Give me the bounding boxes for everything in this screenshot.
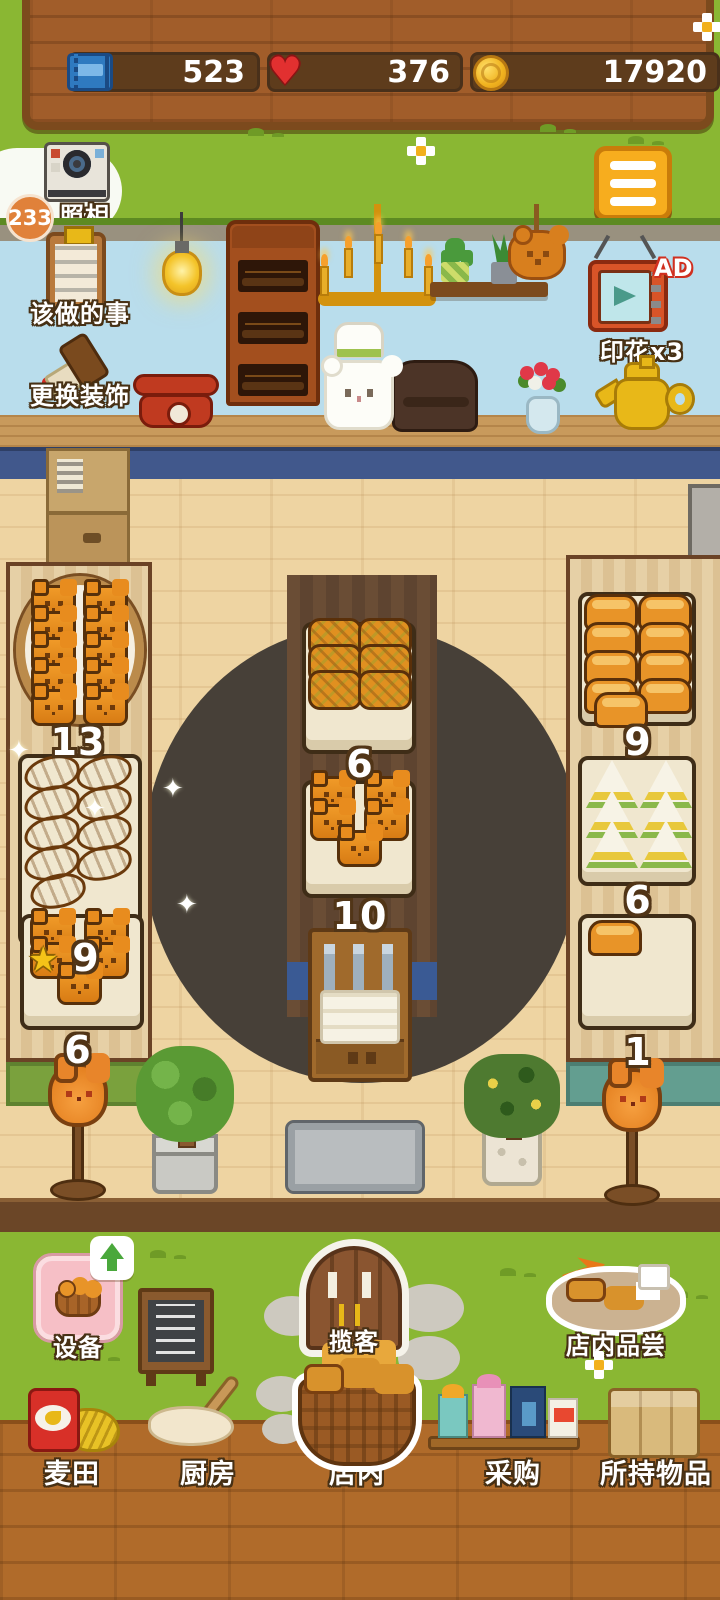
sparkle-icon: ✦ [162,774,184,804]
shop-interior: AD 印花x3 该做的事 更换装饰 [0,218,720,1232]
flower-decor [408,138,434,164]
chocolate-sofa-decor [392,360,478,432]
grass-tuft [628,136,644,144]
grass-tuft [150,1250,166,1258]
cake-candles [324,944,398,994]
coins-pill: 17920 [470,52,720,92]
play-icon [614,286,636,306]
cardboard-boxes [46,448,130,566]
tickets-value: 523 [182,55,245,90]
cake-display-cabinet[interactable] [308,928,412,1082]
currency-sign-board: 523 ♥ 376 17920 [22,0,714,130]
telephone [133,372,219,430]
hearts-value: 376 [387,55,450,90]
doormat [288,1123,422,1191]
kitchen-button[interactable] [148,1398,252,1452]
in-store-button[interactable] [298,1378,416,1466]
inventory-button[interactable] [608,1388,700,1458]
count-center-top: 6 [312,742,408,786]
grass-tuft [500,1268,516,1276]
dough-icon [148,1406,234,1446]
coin-icon [473,55,509,91]
coins-value: 17920 [603,55,707,90]
flower-decor [586,1352,612,1378]
display-sandwich-table[interactable] [578,756,696,886]
camera-count-badge: 233 [6,194,54,242]
count-center-mid: 10 [312,894,408,938]
count-right-mid: 6 [590,878,686,922]
flower-vase [518,366,562,432]
game-screen: 523 ♥ 376 17920 233 照相 [0,0,720,1600]
upgrade-arrow-badge [90,1236,134,1280]
menu-board[interactable] [138,1288,214,1374]
count-right-top: 9 [590,720,686,764]
purchase-label: 采购 [468,1452,558,1491]
count-left-mid: 9 [56,936,116,980]
equipment-label: 设备 [30,1328,126,1363]
grass-tuft [248,128,264,136]
heart-icon: ♥ [268,49,302,93]
wheat-field-button[interactable] [28,1388,80,1452]
cloud-decor [394,1284,464,1332]
bear-lamp [508,228,566,282]
sparkle-icon: ✦ [8,736,30,766]
bread-cabinet [226,220,320,406]
ticket-icon [67,53,113,91]
tasting-label: 店内品尝 [548,1326,684,1361]
count-left-bottom: 6 [30,1028,126,1072]
display-oval-plate[interactable] [16,576,144,724]
display-bear-table-center[interactable] [302,780,416,898]
display-melonbread-table[interactable] [302,622,416,754]
teapot [598,356,694,432]
white-cake [320,990,400,1044]
decorate-label: 更换装饰 [14,376,146,411]
count-right-bottom: 1 [590,1030,686,1074]
display-loaf-table[interactable] [578,592,696,726]
tickets-pill: 523 [68,52,260,92]
cactus-plant [437,238,473,284]
wheat-field-label: 麦田 [26,1452,118,1491]
count-left-top: 13 [30,720,126,764]
display-single-loaf-table[interactable] [578,914,696,1030]
shop-front-edge [0,1198,720,1232]
sparkle-icon: ✦ [176,890,198,920]
purchase-button[interactable] [428,1382,580,1452]
ad-badge: AD [654,254,693,282]
chandelier [318,204,436,334]
flower-decor [694,14,720,40]
kitchen-label: 厨房 [168,1452,248,1491]
star-icon: ★ [28,940,58,980]
currency-row: 523 ♥ 376 17920 [68,52,720,96]
bread-basket-icon [55,1291,101,1317]
grass-tuft [540,124,556,132]
todo-label: 该做的事 [14,294,146,329]
hanging-bulb-lamp [162,250,202,296]
attract-label: 揽客 [304,1322,404,1357]
hearts-pill: ♥ 376 [267,52,463,92]
cloud-decor [398,1336,460,1380]
menu-button[interactable] [594,146,672,220]
wall-shelf [430,282,548,297]
chef-bear-character[interactable] [320,322,398,430]
sparkle-icon: ✦ [84,794,106,824]
tasting-table-button[interactable] [552,1272,680,1330]
